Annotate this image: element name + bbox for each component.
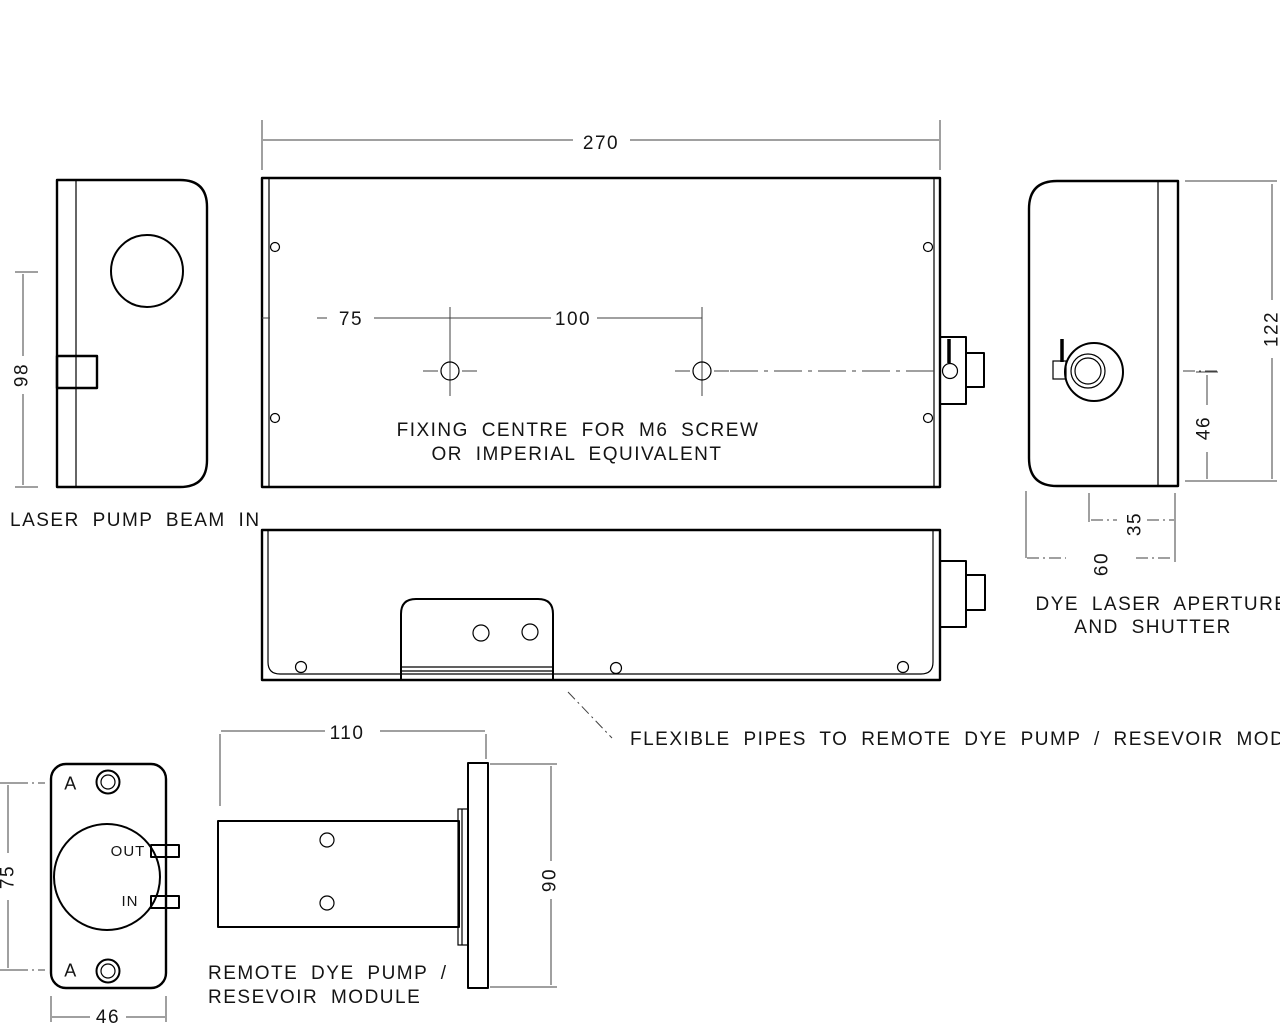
dim-110-label: 110 bbox=[330, 723, 365, 744]
dim-46-pump-label: 46 bbox=[96, 1007, 120, 1024]
pump-flange bbox=[468, 763, 488, 988]
dim-46-aperture: 46 bbox=[1183, 371, 1219, 479]
pump-body-outline bbox=[218, 821, 459, 927]
pump-body-hole bbox=[320, 833, 334, 847]
dim-122-label: 122 bbox=[1262, 311, 1280, 347]
dim-90: 90 bbox=[490, 764, 561, 987]
leader-line bbox=[568, 692, 612, 738]
fixing-note-line1: FIXING CENTRE FOR M6 SCREW bbox=[397, 420, 760, 441]
aperture-end-outline bbox=[1029, 181, 1178, 486]
dim-98: 98 bbox=[12, 272, 38, 487]
pump-front-screw-bottom-outer bbox=[97, 960, 120, 983]
dim-75-pump: 75 bbox=[0, 783, 45, 970]
dim-270-label: 270 bbox=[583, 133, 619, 154]
side-base-hole bbox=[611, 663, 622, 674]
view-pump-side: 110 90 REMOTE DYE PUMP / RESEVOIR MODULE bbox=[208, 723, 561, 1008]
pump-beam-entry-hole bbox=[111, 235, 183, 307]
side-inner-edge bbox=[268, 531, 933, 674]
dim-35-label: 35 bbox=[1125, 512, 1146, 536]
pump-rotor-circle bbox=[54, 824, 160, 930]
dim-46-label: 46 bbox=[1194, 416, 1215, 440]
dim-110: 110 bbox=[220, 723, 486, 806]
aperture-inner-circle bbox=[1075, 358, 1101, 384]
dim-fixing-centres: 75 100 bbox=[262, 307, 702, 396]
view-pump-beam-side: 98 LASER PUMP BEAM IN bbox=[10, 180, 261, 531]
engineering-drawing: 98 LASER PUMP BEAM IN 270 75 100 bbox=[0, 0, 1280, 1024]
aperture-caption-line1: DYE LASER APERTURE bbox=[1035, 594, 1280, 615]
dim-90-label: 90 bbox=[540, 868, 561, 892]
pump-front-screw-top-inner bbox=[101, 775, 115, 789]
pump-body-hole bbox=[320, 896, 334, 910]
dim-75-label: 75 bbox=[339, 309, 363, 330]
pump-caption-line1: REMOTE DYE PUMP / bbox=[208, 963, 448, 984]
dim-270: 270 bbox=[262, 120, 940, 170]
dim-75-pump-label: 75 bbox=[0, 865, 19, 889]
flexible-pipes-note: FLEXIBLE PIPES TO REMOTE DYE PUMP / RESE… bbox=[630, 729, 1280, 750]
pump-caption-line2: RESEVOIR MODULE bbox=[208, 987, 421, 1008]
port-out-label: OUT bbox=[111, 843, 146, 860]
view-plan: 270 75 100 FIXING CENTRE FOR M6 SCREW OR… bbox=[262, 120, 984, 487]
bracket-hole bbox=[473, 625, 489, 641]
hole-label-a-top: A bbox=[64, 773, 78, 793]
port-in-label: IN bbox=[122, 893, 139, 910]
dim-100-label: 100 bbox=[555, 309, 591, 330]
view-pump-front: A A OUT IN 75 46 bbox=[0, 764, 179, 1024]
aperture-caption-line2: AND SHUTTER bbox=[1074, 617, 1232, 638]
shutter-body-circle bbox=[1065, 343, 1123, 401]
bracket-hole bbox=[522, 624, 538, 640]
plan-screw-hole bbox=[924, 243, 933, 252]
pump-beam-caption: LASER PUMP BEAM IN bbox=[10, 510, 261, 531]
plan-screw-hole bbox=[271, 243, 280, 252]
hole-label-a-bottom: A bbox=[64, 960, 78, 980]
fixing-note-line2: OR IMPERIAL EQUIVALENT bbox=[432, 444, 723, 465]
aperture-outer-circle bbox=[1071, 354, 1105, 388]
drawing-canvas: 98 LASER PUMP BEAM IN 270 75 100 bbox=[0, 0, 1280, 1024]
dim-60: 60 bbox=[1026, 491, 1174, 576]
pump-beam-outline bbox=[57, 180, 207, 487]
dim-60-label: 60 bbox=[1092, 552, 1113, 576]
pump-front-screw-top-outer bbox=[97, 771, 120, 794]
side-shutter-knob bbox=[940, 561, 985, 627]
side-base-hole bbox=[898, 662, 909, 673]
pump-front-outline bbox=[51, 764, 166, 988]
side-outline bbox=[262, 530, 940, 680]
plan-screw-hole bbox=[271, 414, 280, 423]
pump-front-screw-bottom-inner bbox=[101, 964, 115, 978]
view-aperture-end: 122 46 35 60 DYE LASER APERTURE AND SHUT… bbox=[1026, 181, 1280, 638]
dim-35: 35 bbox=[1089, 493, 1175, 562]
side-base-hole bbox=[296, 662, 307, 673]
dim-98-label: 98 bbox=[12, 363, 33, 387]
plan-shutter-knob bbox=[940, 337, 984, 404]
plan-screw-hole bbox=[924, 414, 933, 423]
view-side: FLEXIBLE PIPES TO REMOTE DYE PUMP / RESE… bbox=[262, 530, 1280, 750]
dim-46-pump: 46 bbox=[51, 996, 166, 1024]
pump-beam-notch bbox=[57, 356, 97, 388]
